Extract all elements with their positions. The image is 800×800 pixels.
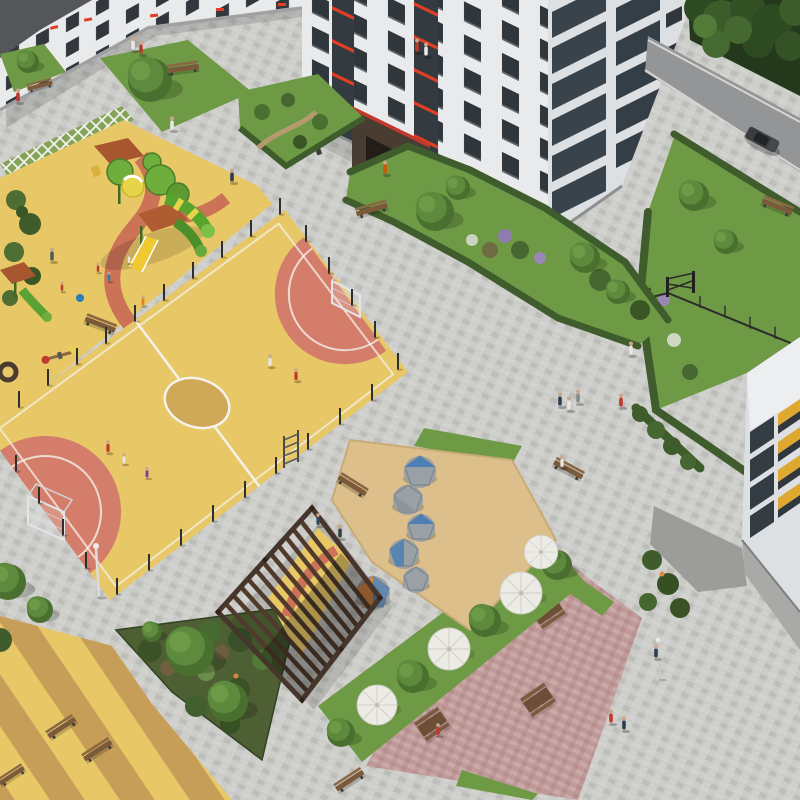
shrub: [682, 364, 698, 380]
flower-bush: [498, 229, 512, 243]
courtyard-render: [0, 0, 800, 800]
scene-canvas: [0, 0, 800, 800]
flower-bush: [667, 333, 681, 347]
spring-rider: [76, 294, 84, 302]
